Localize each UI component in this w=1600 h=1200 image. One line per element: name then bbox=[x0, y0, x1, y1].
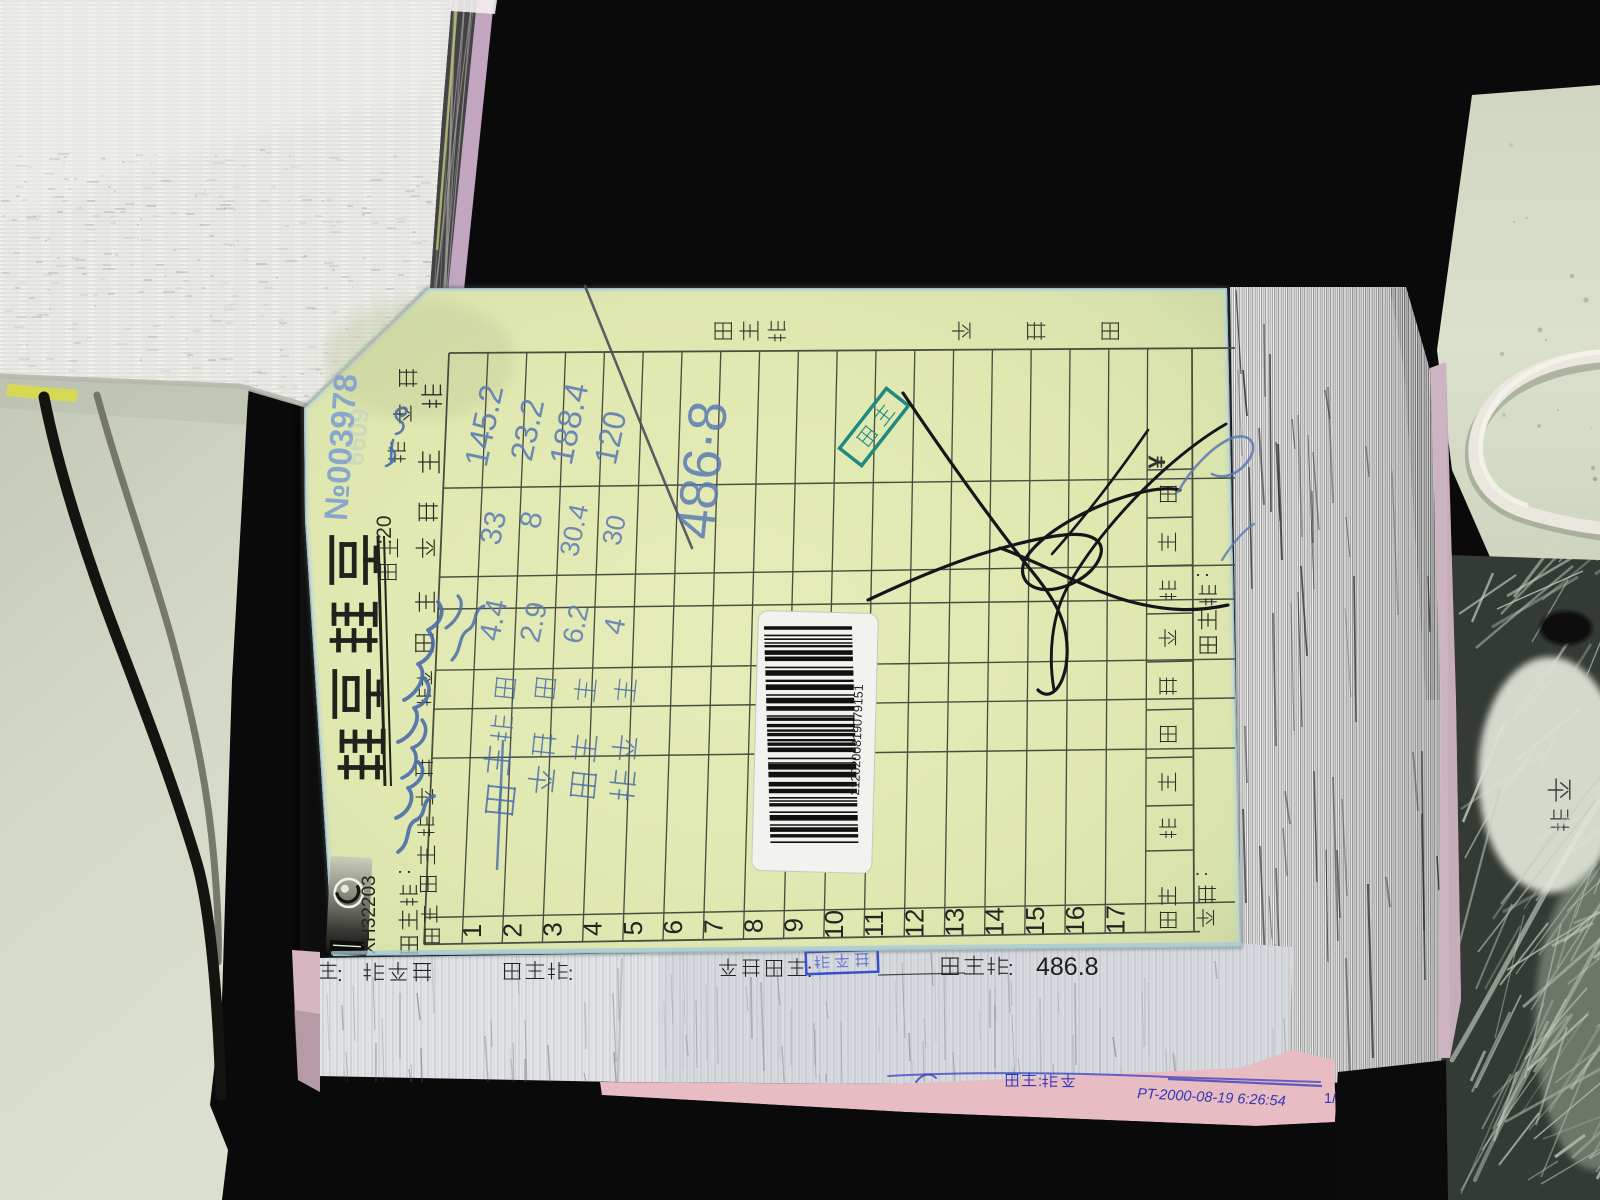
svg-text:13: 13 bbox=[940, 908, 970, 937]
svg-text:6: 6 bbox=[658, 920, 688, 934]
svg-text:6609: 6609 bbox=[339, 407, 375, 468]
svg-text:15: 15 bbox=[1020, 906, 1050, 935]
svg-text:4: 4 bbox=[578, 922, 608, 936]
svg-text:14: 14 bbox=[980, 907, 1010, 936]
svg-text:16: 16 bbox=[1060, 906, 1090, 935]
svg-text:9: 9 bbox=[779, 918, 809, 932]
svg-text::: : bbox=[568, 964, 573, 985]
svg-text:XH32203: XH32203 bbox=[359, 875, 380, 954]
svg-text::: : bbox=[1008, 958, 1014, 980]
svg-text:1: 1 bbox=[457, 924, 487, 938]
svg-text::: : bbox=[1038, 1073, 1042, 1090]
svg-text:10: 10 bbox=[819, 910, 849, 939]
svg-text::20: :20 bbox=[373, 515, 396, 544]
svg-text::: : bbox=[807, 961, 812, 982]
svg-text:3: 3 bbox=[538, 922, 568, 936]
svg-text::: : bbox=[1191, 871, 1212, 876]
svg-text:12: 12 bbox=[899, 909, 929, 938]
svg-text:33: 33 bbox=[474, 508, 513, 548]
svg-text:2: 2 bbox=[497, 923, 527, 937]
svg-text:7: 7 bbox=[698, 919, 728, 933]
svg-text:8: 8 bbox=[739, 919, 769, 933]
svg-text::: : bbox=[337, 964, 343, 986]
svg-text::: : bbox=[393, 869, 415, 875]
svg-text:486.8: 486.8 bbox=[1036, 953, 1099, 981]
svg-text::: : bbox=[1191, 572, 1213, 578]
svg-text:11: 11 bbox=[859, 910, 889, 937]
svg-text:17: 17 bbox=[1100, 905, 1130, 934]
svg-text:30: 30 bbox=[596, 512, 632, 548]
svg-text:5: 5 bbox=[618, 921, 648, 935]
